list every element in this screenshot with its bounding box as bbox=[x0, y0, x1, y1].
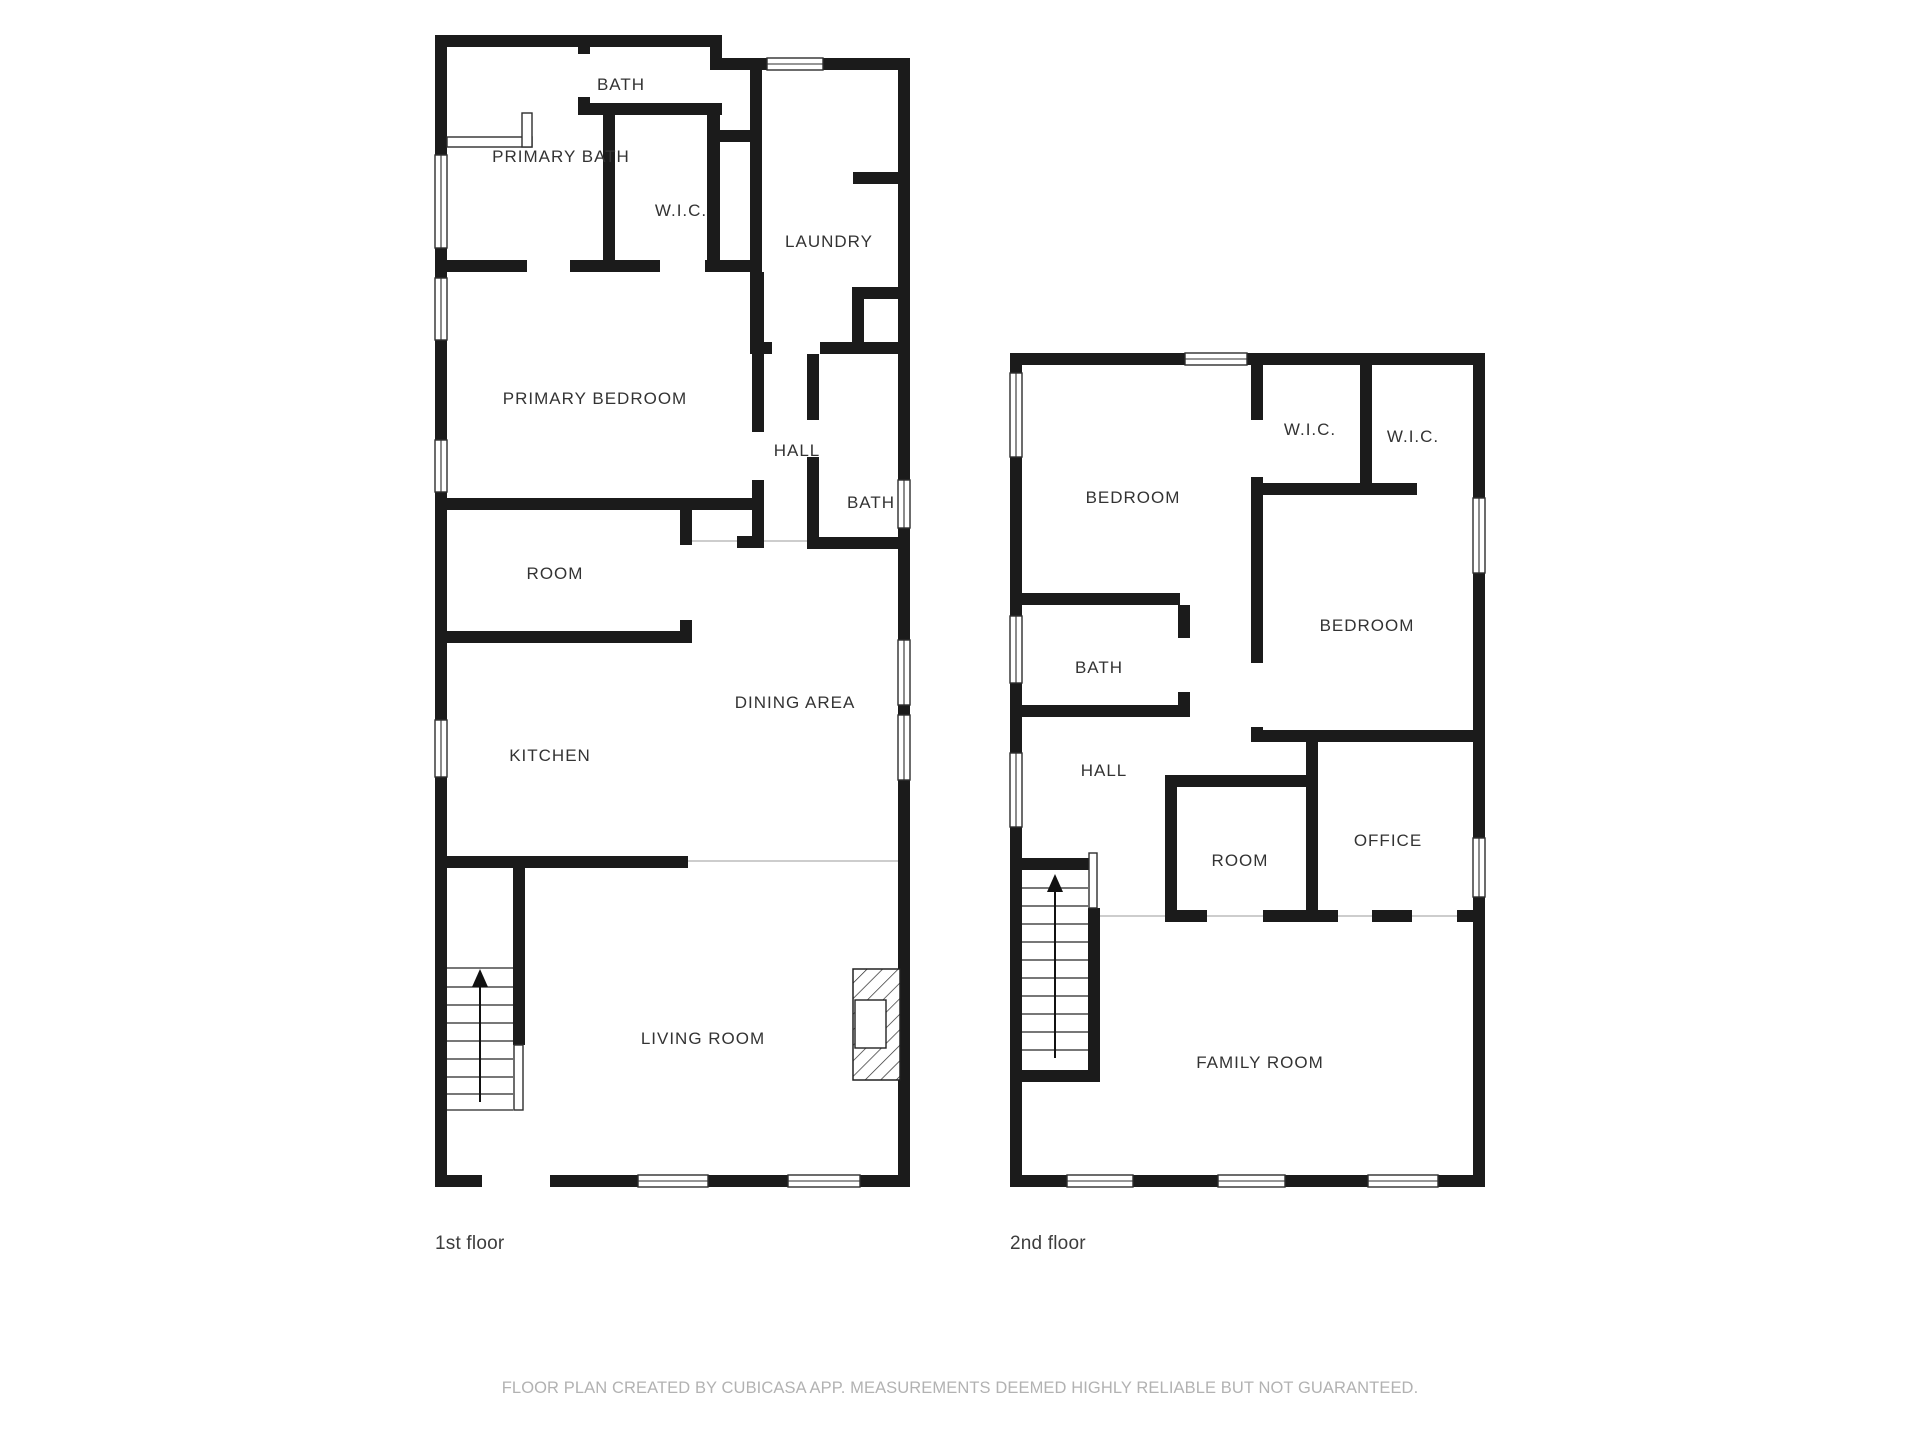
room-label-room: ROOM bbox=[1212, 851, 1269, 870]
room-label-primary-bedroom: PRIMARY BEDROOM bbox=[503, 389, 687, 408]
bathroom-counter bbox=[447, 113, 532, 147]
window bbox=[1368, 1175, 1438, 1187]
room-labels: BATH PRIMARY BATH W.I.C. LAUNDRY PRIMARY… bbox=[492, 75, 895, 1048]
stairs-up-arrow-icon bbox=[1047, 874, 1063, 1058]
room-label-living-room: LIVING ROOM bbox=[641, 1029, 765, 1048]
disclaimer-text: FLOOR PLAN CREATED BY CUBICASA APP. MEAS… bbox=[0, 1379, 1920, 1398]
window bbox=[898, 715, 910, 780]
window bbox=[1473, 498, 1485, 573]
window bbox=[638, 1175, 708, 1187]
window bbox=[1010, 753, 1022, 827]
floor-plan-page: BATH PRIMARY BATH W.I.C. LAUNDRY PRIMARY… bbox=[0, 0, 1920, 1440]
window bbox=[1010, 373, 1022, 457]
window bbox=[1010, 616, 1022, 683]
room-label-hall: HALL bbox=[774, 441, 821, 460]
window bbox=[435, 440, 447, 492]
room-label-office: OFFICE bbox=[1354, 831, 1422, 850]
window bbox=[898, 640, 910, 705]
floor-label-2nd: 2nd floor bbox=[1010, 1233, 1086, 1255]
window bbox=[788, 1175, 860, 1187]
stairs bbox=[1022, 853, 1097, 1058]
windows bbox=[435, 58, 910, 1187]
second-floor-plan: BEDROOM W.I.C. W.I.C. BEDROOM BATH HALL … bbox=[1010, 353, 1485, 1187]
window bbox=[435, 720, 447, 777]
stairs-up-arrow-icon bbox=[472, 969, 488, 1102]
room-label-bedroom: BEDROOM bbox=[1086, 488, 1181, 507]
window bbox=[1067, 1175, 1133, 1187]
window bbox=[1473, 838, 1485, 897]
fireplace bbox=[853, 969, 900, 1080]
window bbox=[898, 480, 910, 528]
stairs bbox=[447, 968, 523, 1110]
room-label-laundry: LAUNDRY bbox=[785, 232, 873, 251]
room-label-bath-2: BATH bbox=[847, 493, 895, 512]
room-label-wic: W.I.C. bbox=[655, 201, 707, 220]
room-label-family-room: FAMILY ROOM bbox=[1196, 1053, 1324, 1072]
room-label-dining-area: DINING AREA bbox=[735, 693, 856, 712]
first-floor-plan: BATH PRIMARY BATH W.I.C. LAUNDRY PRIMARY… bbox=[435, 35, 910, 1187]
room-label-kitchen: KITCHEN bbox=[509, 746, 591, 765]
room-label-room: ROOM bbox=[527, 564, 584, 583]
window bbox=[767, 58, 823, 70]
window bbox=[435, 278, 447, 340]
room-label-bath: BATH bbox=[1075, 658, 1123, 677]
window bbox=[1218, 1175, 1285, 1187]
room-label-wic-1: W.I.C. bbox=[1284, 420, 1336, 439]
room-label-wic-2: W.I.C. bbox=[1387, 427, 1439, 446]
window bbox=[435, 155, 447, 248]
room-label-bath: BATH bbox=[597, 75, 645, 94]
floor-plan-drawing: BATH PRIMARY BATH W.I.C. LAUNDRY PRIMARY… bbox=[0, 0, 1920, 1440]
room-label-hall: HALL bbox=[1081, 761, 1128, 780]
room-label-bedroom-2: BEDROOM bbox=[1320, 616, 1415, 635]
room-label-primary-bath: PRIMARY BATH bbox=[492, 147, 630, 166]
floor-label-1st: 1st floor bbox=[435, 1233, 504, 1255]
window bbox=[1185, 353, 1247, 365]
